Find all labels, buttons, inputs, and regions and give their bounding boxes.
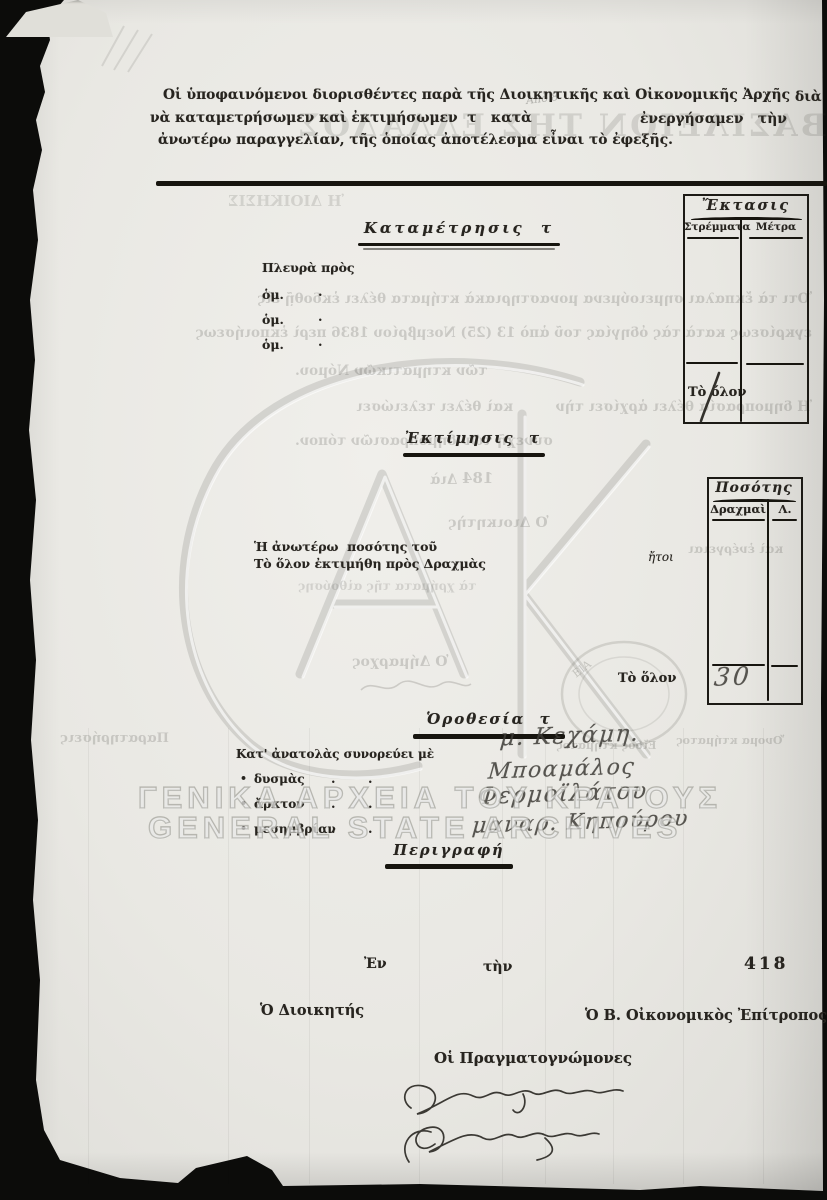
ektasis-table-title: Ἔκτασις — [690, 198, 802, 213]
bleed-line: τὰ χρήματα τῆς αἰθούσης — [298, 580, 476, 593]
ektasis-title-rule — [691, 217, 802, 220]
ektasis-total-line — [746, 363, 804, 365]
bleed-line: τῶν κτηματικῶν Νόμου. — [295, 364, 487, 378]
bleed-line: Ὁ Δήμαρχος — [352, 655, 448, 670]
ektimisis-line-2: Τὸ ὅλον ἐκτιμήθη πρὸς Δραχμὰς — [254, 557, 486, 570]
perigrafi-heading: Περιγραφή — [388, 843, 510, 858]
handwritten-total-stremmata — [698, 370, 724, 424]
bleed-line: Ὄνομα κτήματος — [676, 735, 784, 747]
ektasis-col-metra: Μέτρα — [745, 222, 807, 233]
katametrisis-underline — [358, 243, 560, 246]
top-rule — [156, 181, 827, 186]
date-label: τὴν — [483, 960, 512, 975]
katametrisis-heading: Καταμέτρησις τ — [352, 221, 566, 237]
protocol-number: 418 — [744, 956, 789, 974]
posotis-header-underline — [772, 519, 797, 521]
posotis-col-lepta: Λ. — [770, 503, 800, 515]
archive-watermark-english: GENERAL STATE ARCHIVES — [148, 812, 660, 845]
handwritten-total-drachmai: 30 — [713, 663, 753, 691]
posotis-table-title: Ποσότης — [710, 481, 798, 496]
bleed-line: Διὰ — [430, 473, 457, 487]
perigrafi-underline — [385, 864, 513, 869]
posotis-header-underline — [712, 519, 765, 521]
scanned-archive-document: ΕΙΑ Οἱ ὑποφαινόμενοι διορισθέντες παρὰ τ… — [0, 0, 827, 1200]
bleed-dioikisis: Ἡ ΔΙΟΙΚΗΣΙΣ — [228, 194, 344, 210]
fold-line — [88, 728, 89, 1184]
bleed-basileion: ΒΑΣΙΛΕΙΟΝ ΤΗΣ ΕΛΛΑΔΟΣ — [393, 110, 827, 143]
katametrisis-underline-smudge — [363, 248, 555, 250]
commissioner-label: Ὁ Β. Οἰκονομικὸς Ἐπίτροπος — [585, 1008, 827, 1023]
boundary-east-label: Κατ' ἀνατολὰς συνορεύει μὲ — [236, 748, 434, 761]
side-label: Πλευρὰ πρὸς — [262, 261, 355, 274]
svg-text:ΕΙΑ: ΕΙΑ — [570, 657, 595, 680]
itoi-label: ἤτοι — [648, 551, 674, 564]
bleed-line: Ὁ Διοικητὴς — [448, 516, 549, 531]
header-line-1: Οἱ ὑποφαινόμενοι διορισθέντες παρὰ τῆς Δ… — [163, 88, 790, 102]
ektasis-col-stremmata: Στρέμματα — [684, 222, 741, 233]
ektasis-header-underline — [749, 237, 803, 239]
bleed-signature-scribble — [355, 672, 475, 700]
ektasis-total-line — [686, 362, 738, 364]
header-line-1-end: διὰ — [795, 90, 822, 104]
bleed-number: 184 — [462, 471, 493, 487]
governor-label: Ὁ Διοικητής — [260, 1003, 364, 1018]
posotis-column-divider — [767, 499, 769, 701]
ektimisis-underline — [403, 453, 545, 457]
bleed-line: Παρατηρήσεις — [60, 732, 169, 746]
pencil-scribble — [94, 16, 164, 78]
experts-label: Οἱ Πραγματογνώμονες — [434, 1051, 632, 1067]
ektimisis-heading: Ἐκτίμησις τ — [398, 431, 548, 447]
handwritten-boundary-east: μ. Κεχάμη. — [499, 722, 641, 751]
ektasis-header-underline — [687, 237, 739, 239]
ektimisis-line-1: Ἡ ἀνωτέρω ποσότης τοῦ — [254, 540, 437, 553]
ektimisis-total-label: Τὸ ὅλον — [618, 672, 676, 686]
posotis-total-line — [771, 665, 798, 667]
ektasis-column-divider — [740, 218, 742, 422]
dot-leader: . — [318, 311, 323, 325]
handwritten-expert-signatures — [395, 1074, 695, 1169]
place-label: Ἐν — [364, 957, 387, 972]
posotis-col-drachmai: Δραχμαὶ — [708, 503, 768, 515]
